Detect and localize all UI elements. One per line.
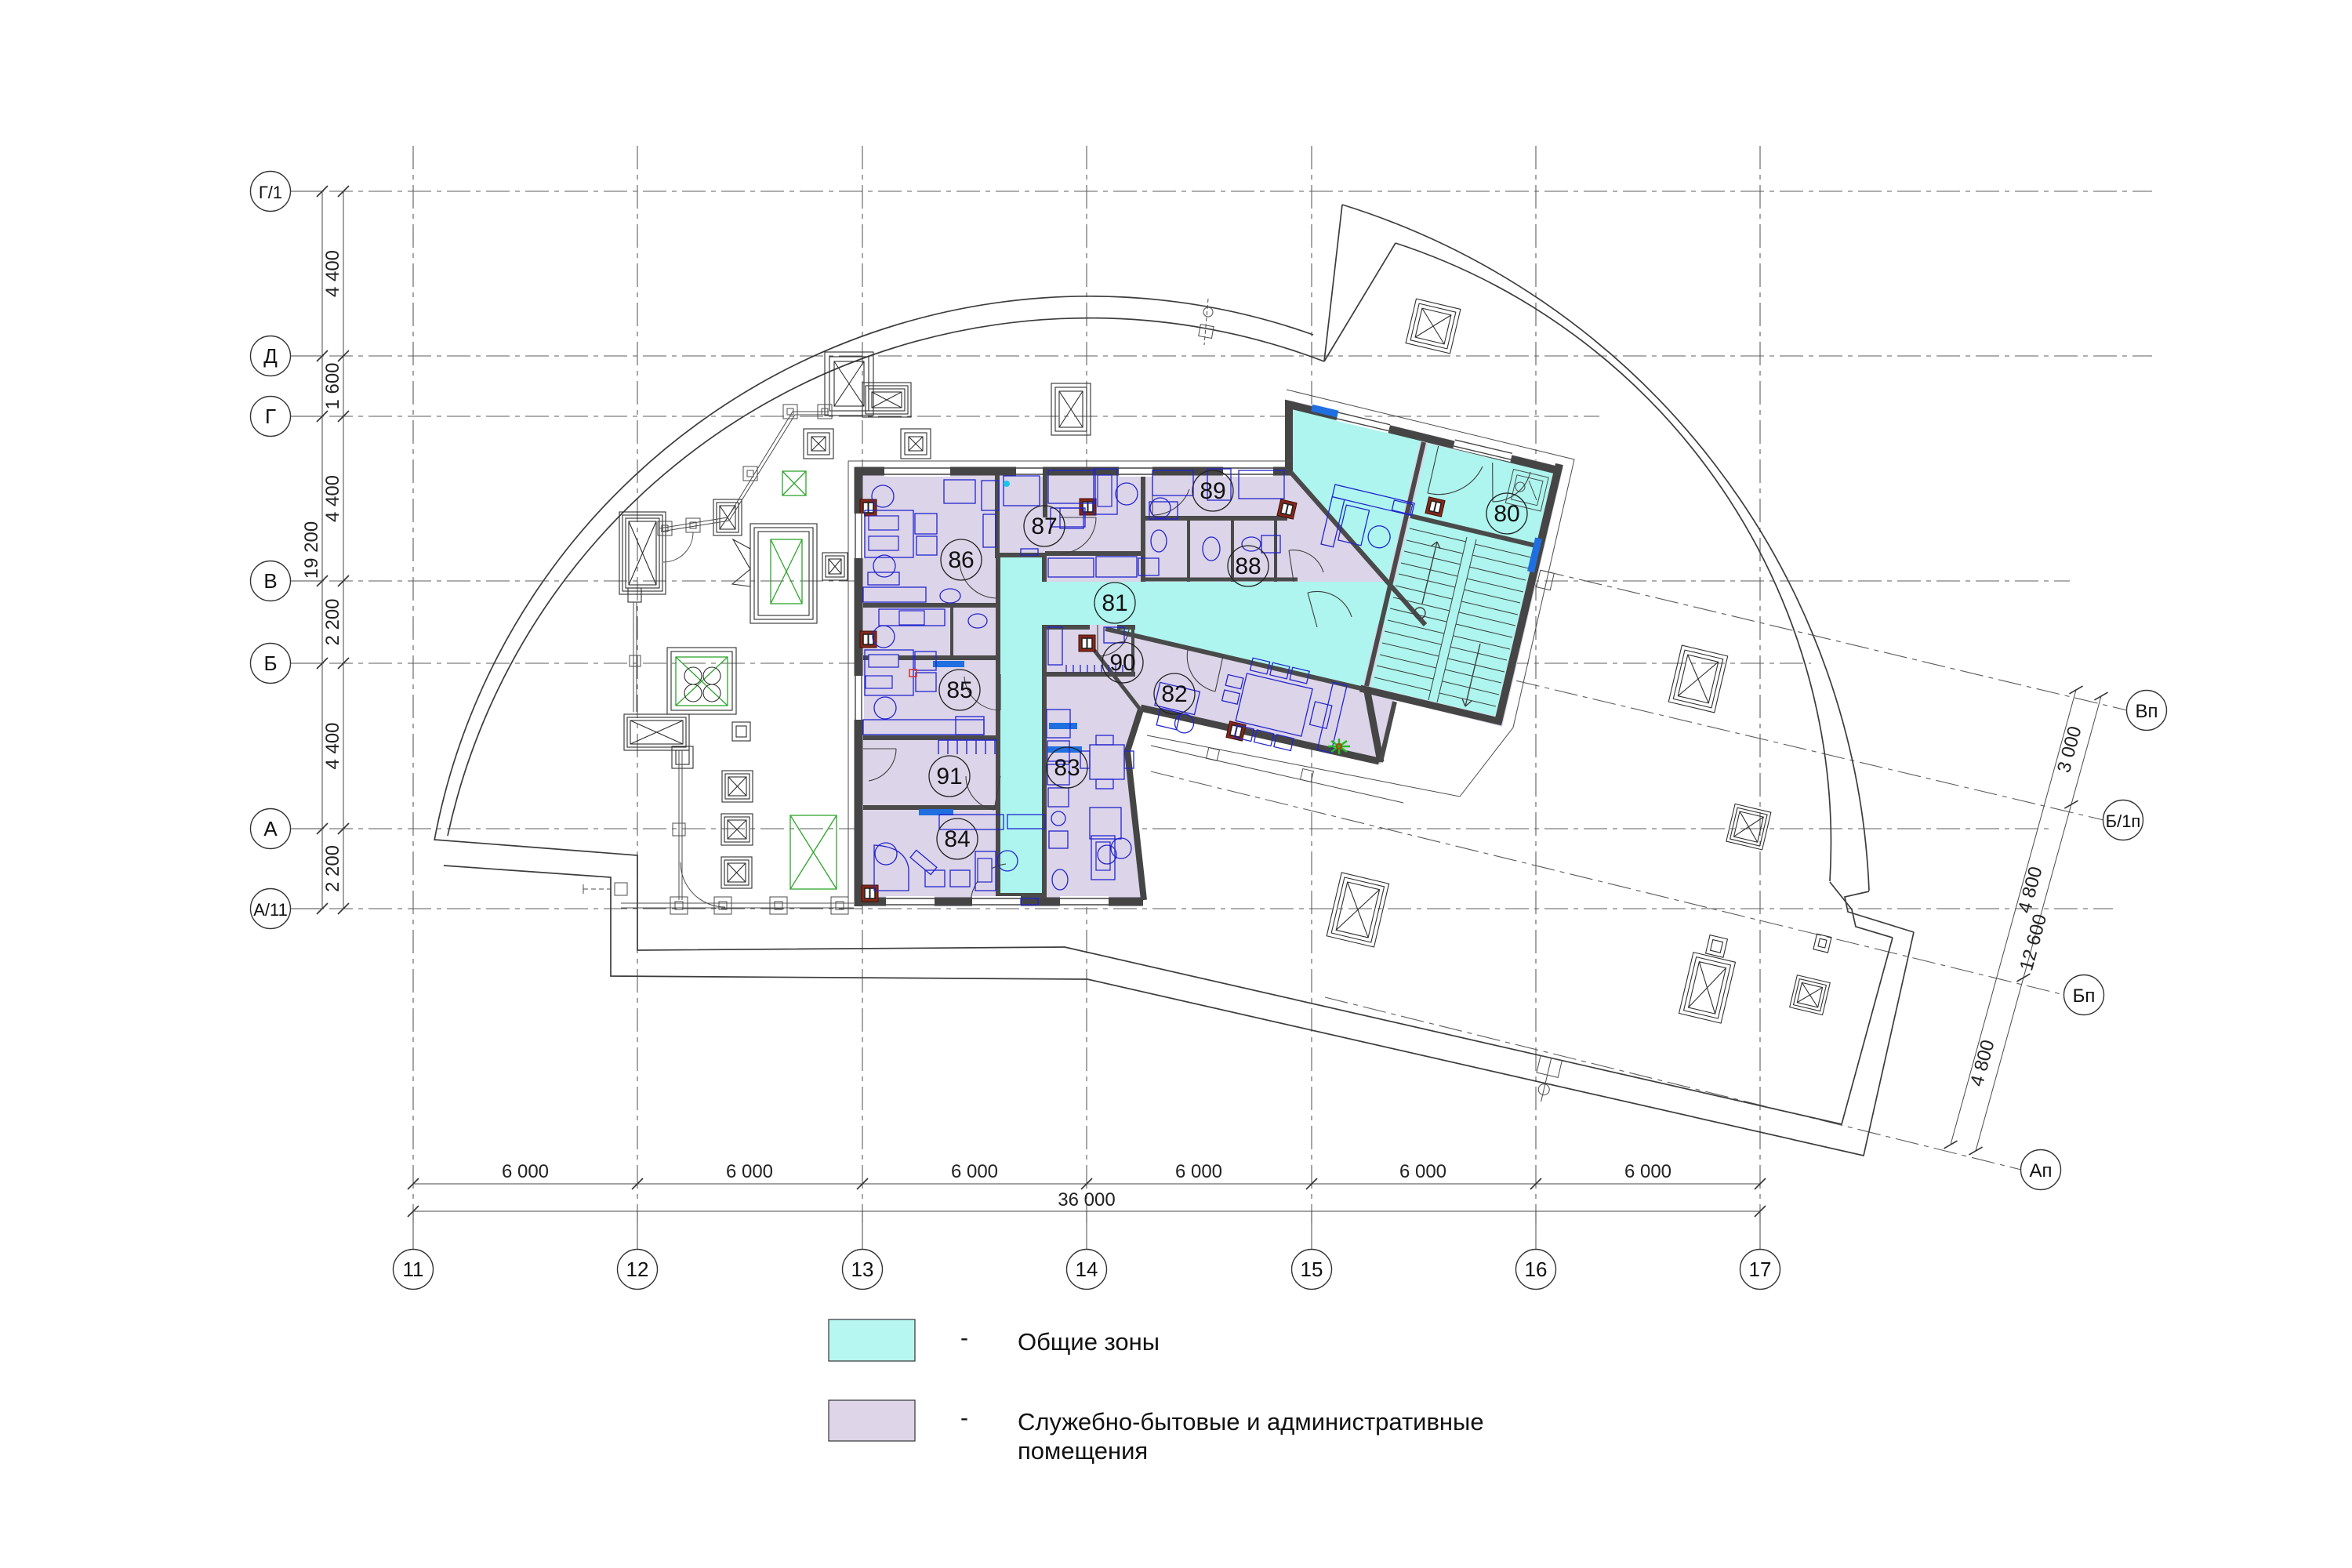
svg-text:90: 90	[1109, 650, 1135, 676]
svg-text:помещения: помещения	[1018, 1437, 1148, 1465]
svg-text:86: 86	[948, 547, 974, 573]
svg-text:6 000: 6 000	[951, 1161, 998, 1182]
svg-text:84: 84	[944, 826, 970, 852]
svg-text:14: 14	[1076, 1258, 1098, 1281]
svg-text:А: А	[263, 817, 278, 840]
svg-text:Д: Д	[263, 344, 278, 368]
svg-text:6 000: 6 000	[726, 1161, 773, 1182]
svg-text:Вп: Вп	[2135, 701, 2158, 722]
svg-text:2 200: 2 200	[322, 845, 343, 892]
svg-text:Ап: Ап	[2029, 1160, 2052, 1181]
svg-text:13: 13	[851, 1258, 874, 1281]
svg-text:4 400: 4 400	[322, 722, 343, 769]
svg-text:Б: Б	[263, 652, 277, 675]
svg-text:81: 81	[1102, 590, 1127, 616]
svg-text:88: 88	[1235, 554, 1261, 579]
svg-text:Служебно-бытовые и администрат: Служебно-бытовые и административные	[1018, 1408, 1484, 1436]
svg-text:Г: Г	[265, 405, 276, 428]
svg-text:Бп: Бп	[2073, 985, 2096, 1007]
svg-text:2 200: 2 200	[322, 598, 343, 645]
svg-text:6 000: 6 000	[502, 1161, 549, 1182]
svg-text:Б/1п: Б/1п	[2106, 811, 2141, 831]
svg-text:85: 85	[946, 677, 972, 703]
svg-text:1 600: 1 600	[322, 362, 343, 409]
svg-text:87: 87	[1031, 514, 1057, 539]
svg-text:В: В	[263, 569, 277, 593]
svg-text:11: 11	[403, 1258, 424, 1281]
svg-text:83: 83	[1054, 755, 1080, 781]
svg-text:-: -	[960, 1405, 968, 1431]
svg-text:6 000: 6 000	[1175, 1161, 1222, 1182]
svg-text:36 000: 36 000	[1058, 1189, 1115, 1210]
svg-text:6 000: 6 000	[1624, 1161, 1671, 1182]
svg-text:91: 91	[936, 764, 962, 789]
svg-text:-: -	[960, 1325, 968, 1351]
svg-text:17: 17	[1749, 1258, 1772, 1281]
svg-text:89: 89	[1200, 478, 1225, 504]
svg-text:80: 80	[1494, 501, 1519, 527]
svg-text:12: 12	[626, 1258, 649, 1281]
svg-text:4 400: 4 400	[322, 250, 343, 297]
svg-text:4 400: 4 400	[322, 475, 343, 522]
svg-text:6 000: 6 000	[1399, 1161, 1446, 1182]
svg-text:19 200: 19 200	[301, 521, 322, 579]
svg-text:Общие зоны: Общие зоны	[1018, 1328, 1160, 1356]
svg-text:16: 16	[1525, 1258, 1548, 1281]
svg-text:82: 82	[1161, 681, 1187, 707]
svg-text:15: 15	[1301, 1258, 1323, 1281]
svg-text:Г/1: Г/1	[259, 183, 282, 202]
svg-text:А/11: А/11	[253, 900, 288, 920]
